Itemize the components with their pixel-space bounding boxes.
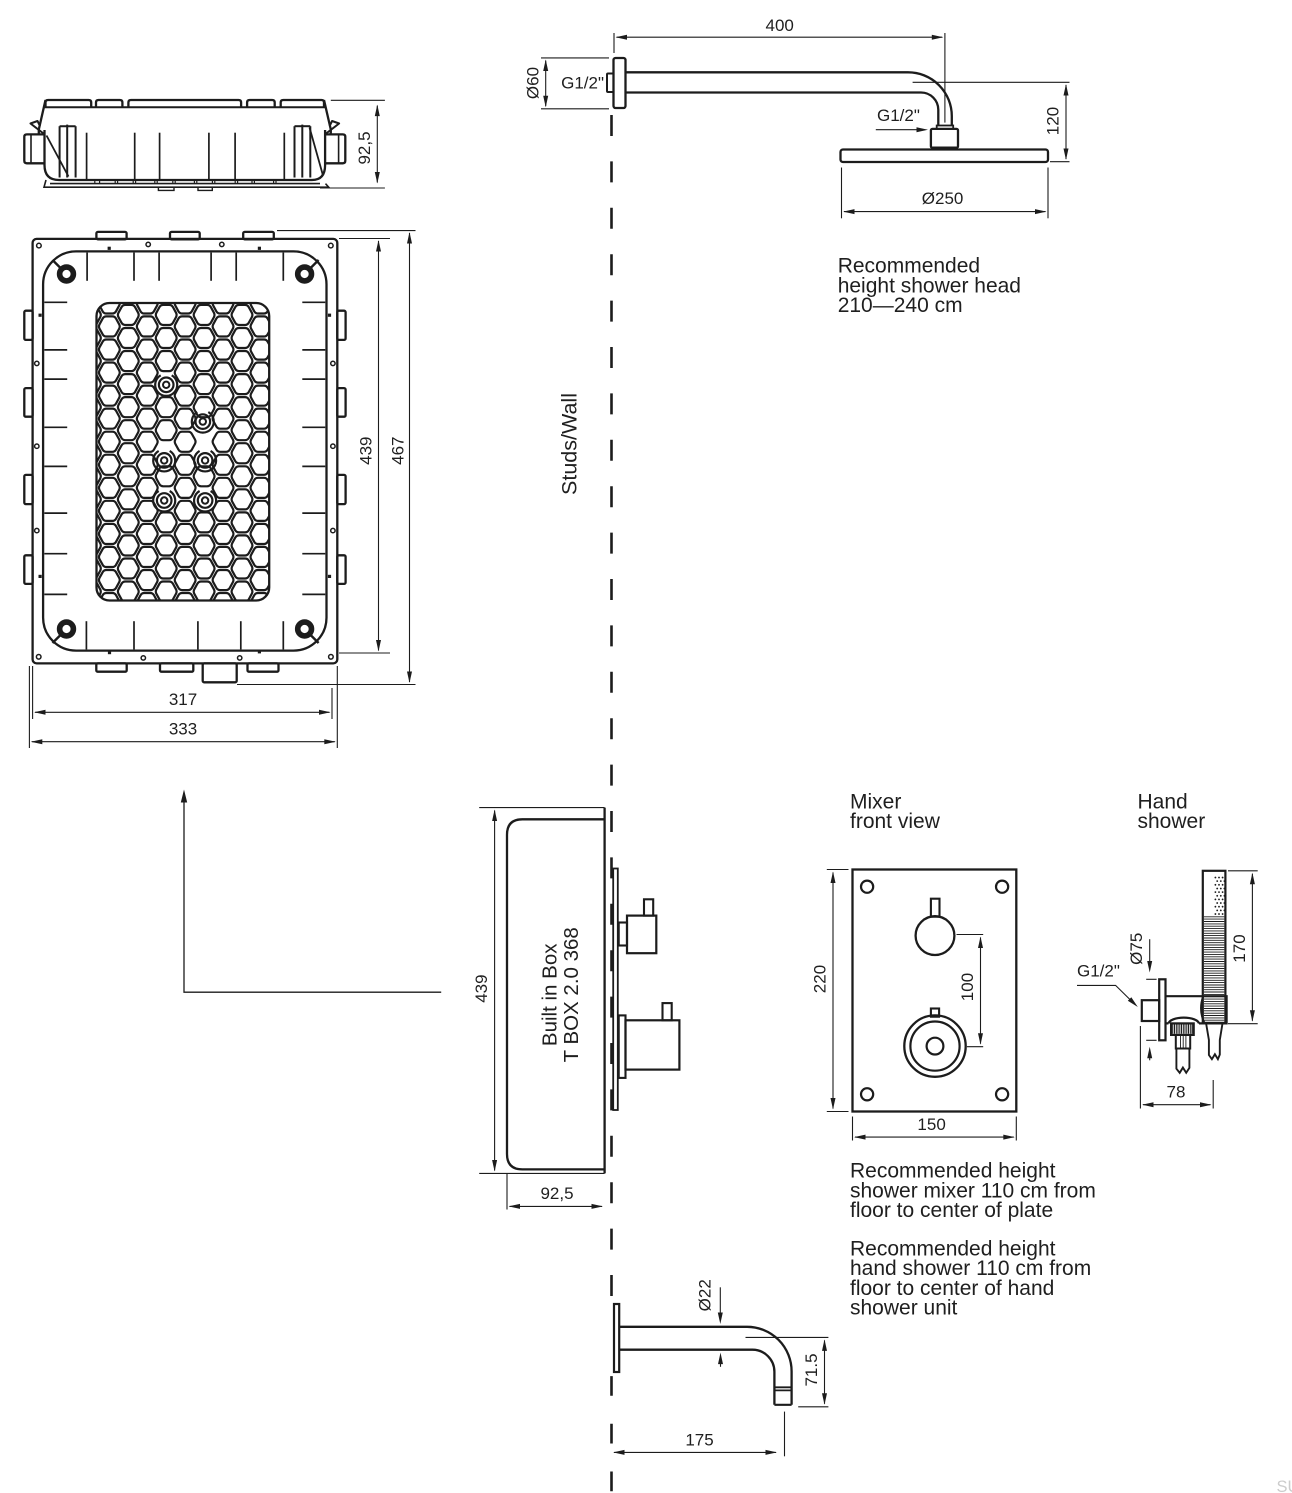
svg-text:92,5: 92,5 [540, 1184, 573, 1203]
svg-text:175: 175 [685, 1431, 713, 1450]
svg-text:71.5: 71.5 [802, 1353, 821, 1386]
svg-text:G1/2": G1/2" [561, 74, 604, 93]
svg-text:100: 100 [958, 973, 977, 1001]
svg-text:Ø75: Ø75 [1127, 933, 1146, 965]
svg-text:T BOX 2.0 368: T BOX 2.0 368 [560, 927, 583, 1062]
svg-text:Ø60: Ø60 [524, 67, 543, 99]
svg-text:78: 78 [1167, 1083, 1186, 1102]
svg-text:Ø250: Ø250 [922, 189, 964, 208]
svg-text:333: 333 [169, 720, 197, 739]
svg-text:Studs/Wall: Studs/Wall [557, 393, 581, 495]
svg-text:439: 439 [472, 974, 491, 1002]
svg-text:467: 467 [389, 437, 408, 465]
svg-text:400: 400 [766, 16, 794, 35]
svg-text:150: 150 [917, 1115, 945, 1134]
svg-text:170: 170 [1230, 934, 1249, 962]
svg-text:92,5: 92,5 [355, 131, 374, 164]
svg-text:439: 439 [356, 437, 375, 465]
svg-text:Ø22: Ø22 [696, 1279, 715, 1311]
svg-text:220: 220 [811, 965, 830, 993]
svg-text:120: 120 [1044, 107, 1063, 135]
svg-text:Built in Box: Built in Box [539, 943, 562, 1046]
svg-text:G1/2": G1/2" [877, 106, 920, 125]
svg-text:317: 317 [169, 690, 197, 709]
svg-text:G1/2": G1/2" [1077, 962, 1120, 981]
svg-text:SU: SU [1277, 1478, 1292, 1493]
